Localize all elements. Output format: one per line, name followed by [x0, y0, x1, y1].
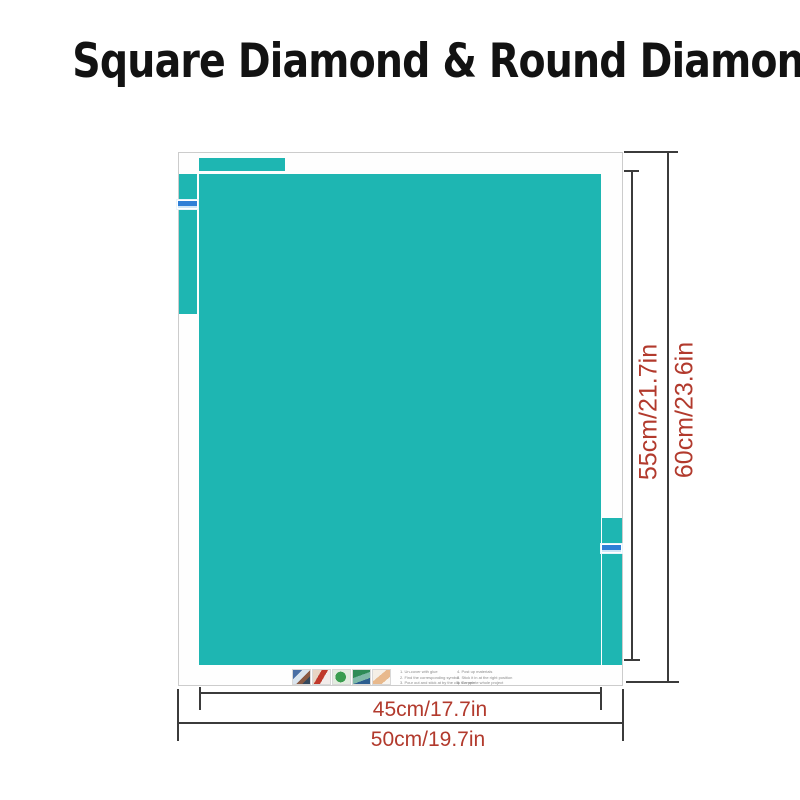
height-dimension-cap-60-top	[624, 151, 678, 153]
instruction-step: 6. Complete whole project	[457, 680, 512, 686]
instruction-thumbnail-3	[332, 669, 351, 685]
height-dimension-label-60: 60cm/23.6in	[671, 342, 700, 478]
instruction-steps-right: 4. Post up materials 5. Stick it in at t…	[457, 669, 512, 686]
width-dimension-tick-45-left	[199, 687, 201, 710]
width-dimension-tick-50-left	[177, 689, 179, 741]
height-dimension-line-55	[631, 171, 633, 660]
height-dimension-label-55: 55cm/21.7in	[635, 344, 664, 480]
width-dimension-label-50: 50cm/19.7in	[227, 728, 629, 752]
barcode-label-left	[176, 199, 199, 210]
width-dimension-label-45: 45cm/17.7in	[229, 698, 631, 722]
height-dimension-cap-55-top	[624, 170, 639, 172]
canvas-main-area	[199, 174, 601, 665]
instruction-thumbnail-5	[372, 669, 391, 685]
page-title-wrap: Square Diamond & Round Diamond	[0, 34, 800, 89]
width-dimension-line-45	[200, 692, 602, 694]
barcode-bar	[178, 206, 197, 208]
width-dimension-line-50	[178, 722, 623, 724]
canvas-top-tab	[199, 158, 285, 171]
instruction-thumbnail-1	[292, 669, 311, 685]
height-dimension-cap-55-bottom	[624, 659, 640, 661]
barcode-label-right	[600, 543, 623, 554]
page-title: Square Diamond & Round Diamond	[72, 34, 800, 89]
canvas-right-strip	[602, 518, 622, 665]
instruction-thumbnail-4	[352, 669, 371, 685]
barcode-bar	[602, 550, 621, 552]
product-dimension-diagram: Square Diamond & Round Diamond 1. Un-cov…	[0, 0, 800, 800]
instruction-thumbnail-2	[312, 669, 331, 685]
canvas-left-strip	[179, 174, 197, 314]
height-dimension-cap-60-bottom	[626, 681, 679, 683]
height-dimension-line-60	[667, 152, 669, 683]
